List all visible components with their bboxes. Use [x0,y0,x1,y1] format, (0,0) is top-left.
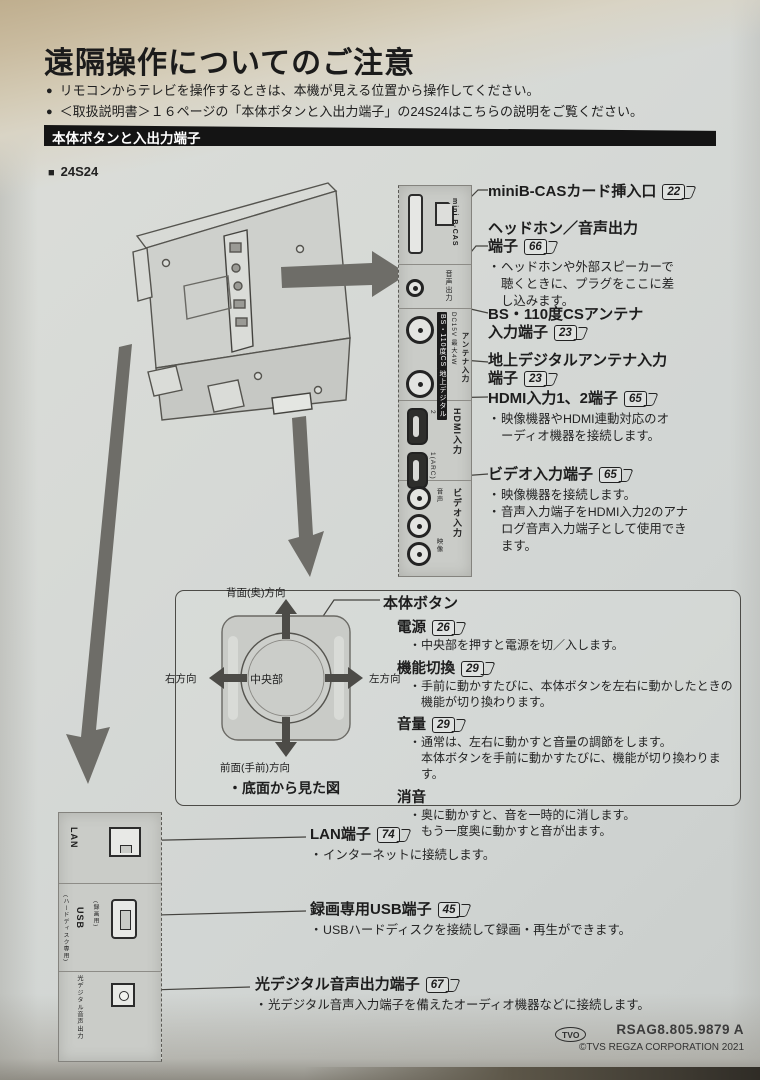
body-button-item-title: 音量 [397,717,426,733]
terminal-title: 端子 [488,238,518,255]
terrestrial-antenna-jack-icon [406,370,434,398]
hdmi1-port-icon [407,452,428,489]
arrow-right-icon [281,251,408,297]
terminal-note: USBハードディスクを接続して録画・再生ができます。 [310,922,740,939]
page-ref: 66 [524,239,556,255]
terminal-title: 端子 [488,370,518,387]
table-edge [304,1067,760,1080]
page-ref: 26 [432,620,464,636]
dc-label: DC15V 最大4W [449,312,458,365]
lan-label: LAN [69,827,79,849]
page-title: 遠隔操作についてのご注意 [44,38,415,82]
page-ref: 29 [432,717,464,733]
page-ref: 74 [377,827,409,843]
audio-right-rca-jack-icon [407,542,431,566]
page-ref: 65 [599,467,631,483]
optical-label: 光デジタル音声出力 [75,975,84,1040]
terminal-note: 映像機器やHDMI連動対応のオーディオ機器を接続します。 [488,411,680,445]
body-button-note: 本体ボタンを手前に動かすたびに、機能が切り換わります。 [409,751,739,783]
bcas-label: mini B-CAS [451,198,458,247]
headphone-jack-icon [406,279,424,297]
terminal-note: ヘッドホンや外部スピーカーで聴くときに、プラグをここに差し込みます。 [488,259,684,310]
video-rca-jack-icon [407,486,431,510]
diagram-label-front: 前面(手前)方向 [220,760,290,775]
audio-left-rca-jack-icon [407,514,431,538]
body-button-header: 本体ボタン [383,592,739,613]
terminal-title: ビデオ入力端子 [488,466,593,483]
optical-port-icon [111,983,135,1007]
audio-label: 音声 [433,488,443,503]
terminal-lan: LAN端子74 インターネットに接続します。 [310,826,740,864]
body-button-item-title: 電源 [397,620,426,636]
header-note: リモコンからテレビを操作するときは、本機が見える位置から操作してください。 [46,80,540,99]
usb-port-icon [111,899,137,939]
hdmi-group-label: HDMI入力 [451,408,464,455]
usb-note2-label: (ハードディスク専用) [61,895,70,962]
terminal-title: ヘッドホン／音声出力 [488,220,746,238]
body-button-item-title: 消音 [397,786,739,807]
page-ref: 29 [461,661,493,677]
body-button-note: 手前に動かすたびに、本体ボタンを左右に動かしたときの機能が切り換わります。 [409,679,739,711]
terminal-title: 入力端子 [488,324,548,341]
tvo-mark: TVO [555,1027,586,1042]
terminal-usb: 録画専用USB端子45 USBハードディスクを接続して録画・再生ができます。 [310,901,740,939]
terminal-minibcas: miniB-CASカード挿入口22 [488,183,694,201]
page-ref: 67 [426,977,458,993]
terminal-title: miniB-CASカード挿入口 [488,183,656,200]
model-label: 24S24 [48,164,98,179]
terminal-title: BS・110度CSアンテナ [488,306,643,324]
composite-label: 映像 [433,538,443,553]
usb-label: USB [75,907,85,929]
video-group-label: ビデオ入力 [451,488,464,538]
page-ref: 45 [438,902,470,918]
terminal-optical: 光デジタル音声出力端子67 光デジタル音声入力端子を備えたオーディオ機器などに接… [255,976,735,1014]
body-button-note: 奥に動かすと、音を一時的に消します。 [409,808,739,824]
header-note: ＜取扱説明書＞１６ページの「本体ボタンと入出力端子」の24S24はこちらの説明を… [46,101,643,120]
terminal-note: 光デジタル音声入力端子を備えたオーディオ機器などに接続します。 [255,997,735,1014]
terminal-title: LAN端子 [310,826,371,843]
diagram-label-center: 中央部 [250,671,283,687]
page-ref: 23 [554,325,586,341]
diagram-label-right-direction: 右方向 [165,671,197,686]
body-button-text: 本体ボタン 電源26 中央部を押すと電源を切／入します。 機能切換29 手前に動… [383,592,739,840]
terminal-video: ビデオ入力端子65 映像機器を接続します。 音声入力端子をHDMI入力2のアナロ… [488,466,746,555]
bs-chip: BS・110度CS [437,312,447,369]
headphone-label: 音声出力 [443,270,453,302]
terminal-bs-cs: BS・110度CSアンテナ 入力端子23 [488,306,643,342]
diagram-caption: ・底面から見た図 [228,778,340,798]
terminal-terrestrial: 地上デジタルアンテナ入力 端子23 [488,352,667,388]
page-ref: 65 [624,391,656,407]
arrow-down-icon [288,416,324,577]
usb-note1-label: (録画用) [91,901,100,927]
section-bar: 本体ボタンと入出力端子 [44,125,716,146]
rear-connector-panel: mini B-CAS 音声出力 BS・110度CS DC15V 最大4W 地上デ… [398,185,472,577]
body-button-note: 通常は、左右に動かすと音量の調節をします。 [409,735,739,751]
lan-port-icon [109,827,141,857]
tv-rear-drawing [133,183,350,420]
bs-antenna-jack-icon [406,316,434,344]
terminal-note: インターネットに接続します。 [310,847,740,864]
page-ref: 23 [524,371,556,387]
terminal-title: 地上デジタルアンテナ入力 [488,352,667,370]
terminal-hdmi: HDMI入力1、2端子65 映像機器やHDMI連動対応のオーディオ機器を接続しま… [488,390,746,445]
hdmi1-label: 1(ARC) [429,452,436,480]
page-ref: 22 [662,184,694,200]
body-button-note: 中央部を押すと電源を切／入します。 [409,638,739,654]
terminal-title: 光デジタル音声出力端子 [255,976,420,993]
hdmi2-port-icon [407,408,428,445]
terminal-note: 映像機器を接続します。 [488,487,688,504]
terminal-note: 音声入力端子をHDMI入力2のアナログ音声入力端子として使用できます。 [488,504,688,555]
body-button-item-title: 機能切換 [397,661,455,677]
bcas-slot [408,194,423,254]
terminal-headphone: ヘッドホン／音声出力 端子66 ヘッドホンや外部スピーカーで聴くときに、プラグを… [488,220,746,310]
antenna-label: アンテナ入力 [460,332,471,383]
arrow-down-left-icon [66,344,132,784]
terminal-title: HDMI入力1、2端子 [488,390,618,407]
manual-page: 遠隔操作についてのご注意 リモコンからテレビを操作するときは、本機が見える位置か… [0,0,760,1080]
terminal-title: 録画専用USB端子 [310,901,432,918]
diagram-label-back: 背面(奥)方向 [226,585,286,600]
document-code: RSAG8.805.9879 A [616,1022,744,1037]
terrestrial-chip: 地上デジタル [437,368,447,420]
copyright: ©TVS REGZA CORPORATION 2021 [579,1042,744,1053]
side-connector-panel: LAN (ハードディスク専用) USB (録画用) 光デジタル音声出力 [58,812,162,1062]
hdmi2-label: 2 [429,410,436,415]
